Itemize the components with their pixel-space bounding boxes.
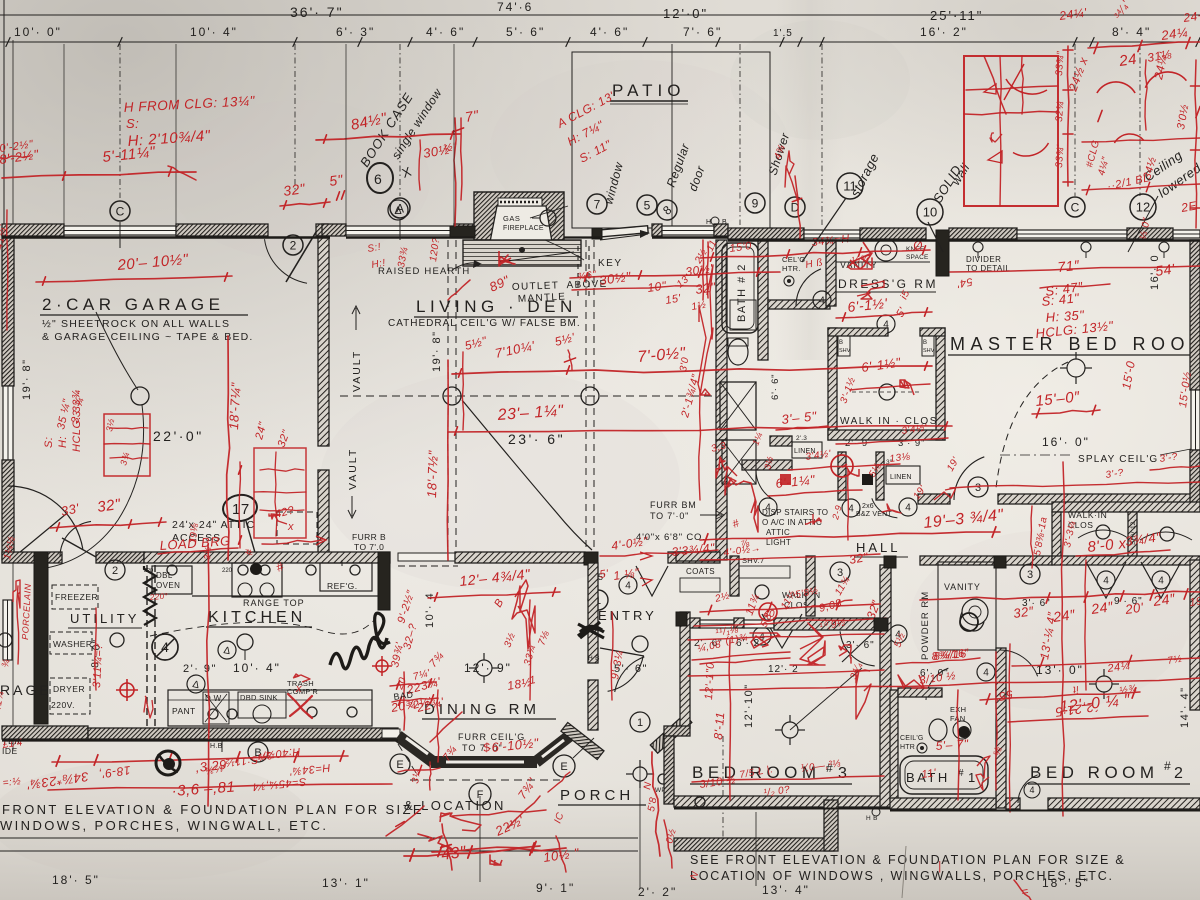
svg-text:14'· 4": 14'· 4" bbox=[1179, 686, 1191, 728]
svg-text:COMP'R: COMP'R bbox=[287, 687, 318, 696]
svg-text:VAULT: VAULT bbox=[351, 350, 363, 392]
svg-text:2: 2 bbox=[1174, 765, 1183, 782]
svg-text:24: 24 bbox=[1117, 51, 1138, 70]
svg-text:x: x bbox=[295, 683, 302, 695]
svg-text:FURR B: FURR B bbox=[352, 532, 386, 542]
svg-text:REF'G.: REF'G. bbox=[327, 581, 358, 591]
svg-text:½" SHEETROCK ON ALL WALLS: ½" SHEETROCK ON ALL WALLS bbox=[42, 318, 230, 330]
svg-text:32": 32" bbox=[282, 180, 307, 199]
svg-text:18'-7½": 18'-7½" bbox=[424, 449, 441, 498]
svg-text:4: 4 bbox=[765, 503, 771, 514]
svg-text:220: 220 bbox=[144, 568, 153, 574]
svg-text:TO 7'·0": TO 7'·0" bbox=[650, 511, 689, 521]
svg-text:CEIL'G: CEIL'G bbox=[900, 735, 924, 742]
svg-text:7: 7 bbox=[594, 197, 601, 211]
svg-text:2: 2 bbox=[112, 565, 118, 577]
svg-text:24″: 24″ bbox=[1089, 598, 1115, 617]
svg-text:7'· 6": 7'· 6" bbox=[683, 25, 722, 39]
svg-text:10'· 0": 10'· 0" bbox=[14, 25, 62, 39]
svg-text:2'.3: 2'.3 bbox=[796, 435, 807, 442]
svg-text:12'-1"0: 12'-1"0 bbox=[703, 662, 717, 701]
svg-text:H:: H: bbox=[57, 436, 69, 448]
svg-text:WINDOWS, PORCHES, WINGWALL, ET: WINDOWS, PORCHES, WINGWALL, ETC. bbox=[0, 818, 328, 833]
svg-text:36'· 7": 36'· 7" bbox=[290, 4, 344, 20]
svg-text:RAGE: RAGE bbox=[0, 682, 52, 698]
svg-text:6'· 3": 6'· 3" bbox=[336, 25, 375, 39]
svg-text:VANITY: VANITY bbox=[944, 582, 981, 592]
svg-text:H: H bbox=[706, 219, 711, 226]
svg-text:HTR.: HTR. bbox=[782, 264, 801, 273]
svg-text:4: 4 bbox=[625, 581, 631, 592]
svg-text:C: C bbox=[116, 204, 125, 218]
svg-text:S:!: S:! bbox=[367, 242, 382, 255]
svg-text:S:: S: bbox=[126, 116, 139, 131]
svg-text:1: 1 bbox=[637, 717, 643, 729]
svg-text:1: 1 bbox=[968, 770, 975, 785]
svg-text:E: E bbox=[396, 759, 403, 771]
svg-text:1'.5: 1'.5 bbox=[773, 28, 793, 39]
svg-text:UTILITY: UTILITY bbox=[70, 611, 139, 626]
svg-text:4: 4 bbox=[983, 668, 989, 679]
svg-text:SHV: SHV bbox=[923, 348, 935, 354]
svg-text:5": 5" bbox=[328, 171, 344, 189]
svg-text:CATHEDRAL CEIL'G W/ FALSE BM.: CATHEDRAL CEIL'G W/ FALSE BM. bbox=[388, 318, 581, 329]
svg-text:3: 3 bbox=[975, 482, 981, 494]
svg-text:GAS: GAS bbox=[503, 214, 520, 223]
svg-text:x: x bbox=[287, 521, 294, 533]
svg-text:2'· 9": 2'· 9" bbox=[183, 663, 217, 675]
svg-text:25'·11": 25'·11" bbox=[930, 8, 983, 23]
svg-text:74'·6: 74'·6 bbox=[497, 0, 533, 14]
svg-text:DBL: DBL bbox=[156, 571, 173, 580]
svg-text:SPLAY CEIL'G: SPLAY CEIL'G bbox=[1078, 454, 1158, 465]
svg-text:4: 4 bbox=[1029, 785, 1034, 795]
svg-text:F: F bbox=[477, 789, 484, 801]
svg-text:5: 5 bbox=[644, 198, 651, 212]
svg-text:FRONT ELEVATION & FOUNDATION P: FRONT ELEVATION & FOUNDATION PLAN FOR SI… bbox=[2, 802, 424, 817]
svg-text:KITCHEN: KITCHEN bbox=[208, 609, 306, 626]
svg-text:19'· 8": 19'· 8" bbox=[21, 358, 33, 400]
svg-text:5'· 6": 5'· 6" bbox=[506, 25, 545, 39]
svg-text:10: 10 bbox=[923, 205, 937, 220]
svg-text:18'-7¼": 18'-7¼" bbox=[226, 381, 244, 430]
svg-text:13'· 1": 13'· 1" bbox=[322, 876, 370, 890]
svg-text:22'·0": 22'·0" bbox=[153, 428, 204, 444]
svg-text:SHV.7: SHV.7 bbox=[742, 556, 765, 565]
svg-text:4: 4 bbox=[1103, 576, 1109, 587]
svg-text:PORCH: PORCH bbox=[560, 787, 634, 804]
svg-text:¾: ¾ bbox=[0, 658, 12, 669]
svg-text:OVEN: OVEN bbox=[156, 581, 180, 590]
svg-text:=:½: =:½ bbox=[2, 776, 22, 789]
svg-text:54': 54' bbox=[1154, 260, 1177, 279]
svg-text:SPACE: SPACE bbox=[906, 254, 929, 261]
svg-text:EXH: EXH bbox=[950, 705, 966, 714]
svg-text:16'· 0": 16'· 0" bbox=[1042, 435, 1090, 449]
svg-text:2: 2 bbox=[290, 238, 297, 252]
svg-text:23'· 6": 23'· 6" bbox=[508, 431, 565, 447]
svg-text:WASHER: WASHER bbox=[53, 639, 92, 649]
svg-text:8'· 4": 8'· 4" bbox=[1112, 25, 1151, 39]
svg-text:2·CAR GARAGE: 2·CAR GARAGE bbox=[42, 295, 224, 314]
svg-text:13'· 4": 13'· 4" bbox=[762, 883, 810, 897]
svg-text:2x6: 2x6 bbox=[862, 503, 874, 510]
svg-text:4: 4 bbox=[905, 503, 911, 514]
svg-text:B: B bbox=[722, 219, 727, 226]
svg-text:LIGHT: LIGHT bbox=[766, 538, 791, 547]
svg-text:220V.: 220V. bbox=[51, 700, 75, 710]
svg-text:32″: 32″ bbox=[1012, 603, 1034, 621]
svg-text:WALK·IN: WALK·IN bbox=[1068, 510, 1107, 520]
svg-text:FURR BM: FURR BM bbox=[650, 500, 697, 510]
svg-text:FREEZER: FREEZER bbox=[55, 592, 98, 602]
svg-text:E: E bbox=[560, 761, 567, 773]
svg-text:POWDER RM: POWDER RM bbox=[920, 591, 931, 660]
svg-text:220°: 220° bbox=[148, 591, 169, 602]
svg-text:8'-11: 8'-11 bbox=[711, 711, 727, 740]
svg-text:LINEN: LINEN bbox=[890, 474, 912, 481]
svg-text:DIVIDER: DIVIDER bbox=[966, 255, 1001, 264]
svg-text:32": 32" bbox=[96, 496, 122, 516]
svg-text:B: B bbox=[923, 340, 927, 346]
svg-text:PANT: PANT bbox=[172, 706, 196, 716]
svg-text:33¾″: 33¾″ bbox=[1054, 50, 1067, 76]
svg-text:10'· 4": 10'· 4" bbox=[233, 661, 281, 675]
svg-text:HTR: HTR bbox=[900, 744, 915, 751]
svg-text:18'· 5": 18'· 5" bbox=[1042, 876, 1090, 890]
svg-text:CEL'G: CEL'G bbox=[782, 255, 805, 264]
svg-text:16'· 2": 16'· 2" bbox=[920, 25, 968, 39]
svg-text:SEE FRONT ELEVATION & FOUNDATI: SEE FRONT ELEVATION & FOUNDATION PLAN FO… bbox=[690, 853, 1126, 867]
svg-text:& GARAGE CEILING ~ TAPE & BED.: & GARAGE CEILING ~ TAPE & BED. bbox=[42, 331, 254, 343]
svg-text:19'· 8": 19'· 8" bbox=[431, 330, 443, 372]
svg-text:ENTRY: ENTRY bbox=[598, 608, 657, 623]
svg-text:#: # bbox=[1164, 759, 1171, 773]
svg-text:KEY: KEY bbox=[598, 258, 623, 269]
svg-text:ATTIC: ATTIC bbox=[766, 528, 790, 537]
svg-text:FIREPLACE: FIREPLACE bbox=[503, 225, 544, 232]
svg-text:|: | bbox=[938, 859, 942, 873]
svg-text:18'· 5": 18'· 5" bbox=[52, 873, 100, 887]
svg-text:DRYER: DRYER bbox=[53, 684, 85, 694]
svg-text:SHV: SHV bbox=[839, 348, 851, 354]
svg-text:17: 17 bbox=[232, 501, 250, 518]
svg-text:71″: 71″ bbox=[1057, 257, 1081, 275]
svg-text:2'· 2": 2'· 2" bbox=[638, 885, 677, 899]
svg-text:9: 9 bbox=[752, 196, 759, 210]
svg-text:BED ROOM: BED ROOM bbox=[1030, 763, 1159, 782]
svg-text:4'· 6": 4'· 6" bbox=[426, 25, 465, 39]
svg-text:VAULT: VAULT bbox=[347, 448, 359, 490]
svg-text:12'· 9": 12'· 9" bbox=[464, 661, 512, 675]
svg-text:Δ: Δ bbox=[394, 205, 402, 217]
svg-text:D W: D W bbox=[205, 694, 222, 703]
svg-text:½": ½" bbox=[442, 141, 459, 155]
svg-text:11': 11' bbox=[921, 767, 938, 781]
svg-text:3: 3 bbox=[1027, 569, 1033, 581]
svg-text:H.B: H.B bbox=[210, 743, 223, 750]
svg-text:DRESS'G RM: DRESS'G RM bbox=[838, 277, 938, 291]
svg-text:RANGE TOP: RANGE TOP bbox=[243, 598, 305, 608]
svg-text:24″: 24″ bbox=[1151, 590, 1177, 609]
svg-text:6'· 6": 6'· 6" bbox=[770, 374, 781, 400]
svg-text:4: 4 bbox=[848, 504, 854, 515]
svg-text:19: 19 bbox=[1189, 595, 1200, 609]
svg-text:9'· 1": 9'· 1" bbox=[536, 881, 575, 895]
svg-text:5'– 7": 5'– 7" bbox=[935, 737, 969, 753]
svg-text:4'· 6": 4'· 6" bbox=[590, 25, 629, 39]
svg-text:DBD SINK: DBD SINK bbox=[240, 693, 278, 702]
svg-text:TO 7'.0: TO 7'.0 bbox=[354, 542, 384, 552]
svg-text:10'· 4": 10'· 4" bbox=[190, 25, 238, 39]
svg-text:33¾': 33¾' bbox=[1054, 144, 1067, 169]
svg-text:S:: S: bbox=[43, 437, 55, 448]
svg-text:H B: H B bbox=[588, 655, 600, 662]
svg-text:32": 32" bbox=[694, 279, 717, 297]
svg-text:COATS: COATS bbox=[686, 567, 715, 576]
svg-text:MASTER BED ROOM: MASTER BED ROOM bbox=[950, 334, 1200, 354]
svg-text:3'11¾=?: 3'11¾=? bbox=[91, 642, 105, 688]
svg-text:12: 12 bbox=[1136, 200, 1150, 215]
svg-text:220: 220 bbox=[222, 568, 233, 574]
svg-text:4: 4 bbox=[819, 296, 825, 307]
svg-text:B: B bbox=[839, 340, 843, 346]
svg-text:PATIO: PATIO bbox=[612, 81, 686, 100]
svg-text:20': 20' bbox=[1123, 600, 1144, 618]
svg-text:C: C bbox=[1071, 200, 1080, 214]
svg-text:12'·0": 12'·0" bbox=[663, 6, 708, 21]
svg-text:6: 6 bbox=[374, 171, 382, 187]
svg-text:4: 4 bbox=[1158, 576, 1164, 587]
